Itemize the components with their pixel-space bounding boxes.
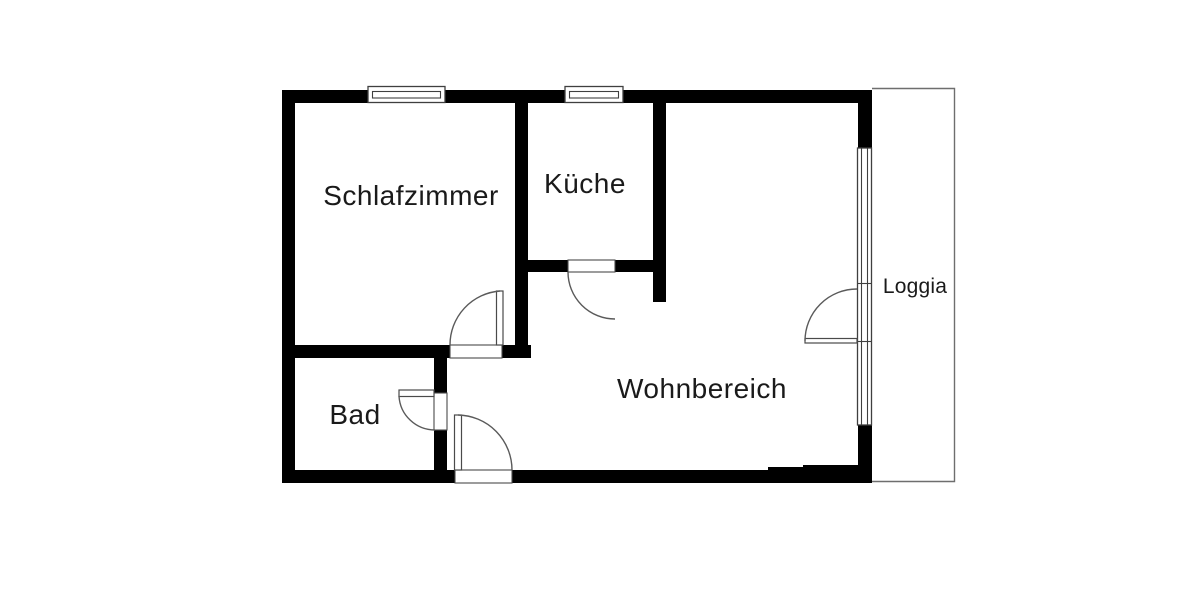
door-swing-loggia-icon (805, 289, 857, 341)
door-opening-kueche (568, 260, 615, 272)
door-swing-entry-icon (458, 415, 512, 470)
room-label-kueche: Küche (544, 168, 626, 199)
wall-divider-stub (502, 345, 531, 358)
wall-schlafzimmer-right (515, 103, 528, 358)
room-label-bad: Bad (329, 399, 380, 430)
floor-plan-page: Schlafzimmer Küche Bad Wohnbereich Loggi… (0, 0, 1200, 600)
window-schlafzimmer-icon (368, 87, 445, 103)
door-opening-bad (434, 393, 447, 430)
door-leaf-loggia-icon (805, 339, 857, 344)
door-swing-schlafzimmer-icon (450, 291, 500, 345)
door-leaf-entry-icon (455, 415, 462, 470)
wall-bad-top (295, 345, 450, 358)
door-leaf-schlafzimmer-icon (497, 291, 504, 345)
room-label-schlafzimmer: Schlafzimmer (323, 180, 499, 211)
room-label-wohnbereich: Wohnbereich (617, 373, 787, 404)
wall-outer-left (282, 90, 295, 483)
door-opening-entry (455, 470, 512, 483)
window-kueche-icon (565, 87, 623, 103)
wall-bad-right-upper (434, 358, 447, 393)
wall-kueche-right (653, 103, 666, 302)
room-label-loggia: Loggia (883, 275, 947, 298)
wall-outer-right-lower (858, 425, 872, 483)
floor-plan-drawing: Schlafzimmer Küche Bad Wohnbereich Loggi… (0, 0, 1200, 600)
window-loggia-icon (858, 148, 872, 425)
wall-bad-right-lower (434, 430, 447, 470)
door-swing-bad-icon (399, 396, 435, 430)
door-swing-kueche-icon (568, 272, 615, 319)
door-leaf-bad-icon (399, 390, 434, 397)
door-opening-schlafzimmer (450, 345, 502, 358)
wall-kueche-bottom-left (515, 260, 568, 272)
wall-outer-right-upper (858, 90, 872, 148)
doors (399, 272, 857, 470)
